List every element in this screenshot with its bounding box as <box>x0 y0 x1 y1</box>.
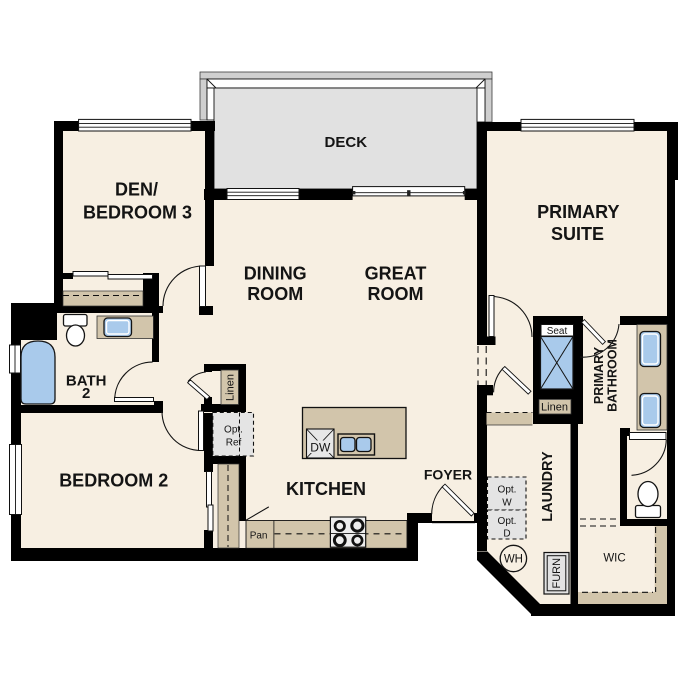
svg-text:PRIMARY: PRIMARY <box>592 346 606 404</box>
svg-text:Linen: Linen <box>224 374 236 401</box>
svg-text:FOYER: FOYER <box>424 467 472 483</box>
svg-text:BEDROOM 2: BEDROOM 2 <box>59 470 168 490</box>
svg-text:DINING: DINING <box>244 263 307 283</box>
svg-text:Pan: Pan <box>250 531 268 542</box>
svg-text:DECK: DECK <box>325 134 368 151</box>
svg-text:WH: WH <box>504 554 523 566</box>
svg-text:Opt.: Opt. <box>498 485 517 496</box>
svg-text:KITCHEN: KITCHEN <box>286 479 366 499</box>
svg-text:Linen: Linen <box>541 401 568 413</box>
svg-text:2: 2 <box>82 385 90 402</box>
svg-text:D: D <box>503 529 510 540</box>
svg-text:LAUNDRY: LAUNDRY <box>540 451 556 522</box>
svg-text:ROOM: ROOM <box>247 284 303 304</box>
svg-text:Opt.: Opt. <box>498 516 517 527</box>
svg-text:WIC: WIC <box>603 552 625 564</box>
svg-text:DW: DW <box>310 441 331 455</box>
svg-text:FURN: FURN <box>551 558 563 589</box>
svg-text:Ref: Ref <box>226 438 242 449</box>
svg-text:ROOM: ROOM <box>368 284 424 304</box>
svg-text:BEDROOM 3: BEDROOM 3 <box>83 203 192 223</box>
svg-text:BATHROOM: BATHROOM <box>606 339 620 412</box>
svg-text:Seat: Seat <box>547 326 568 337</box>
svg-text:GREAT: GREAT <box>365 263 427 283</box>
svg-text:SUITE: SUITE <box>551 224 604 244</box>
svg-text:DEN/: DEN/ <box>115 180 158 200</box>
svg-text:W: W <box>502 498 512 509</box>
svg-text:Opt.: Opt. <box>224 425 243 436</box>
svg-text:PRIMARY: PRIMARY <box>537 202 619 222</box>
